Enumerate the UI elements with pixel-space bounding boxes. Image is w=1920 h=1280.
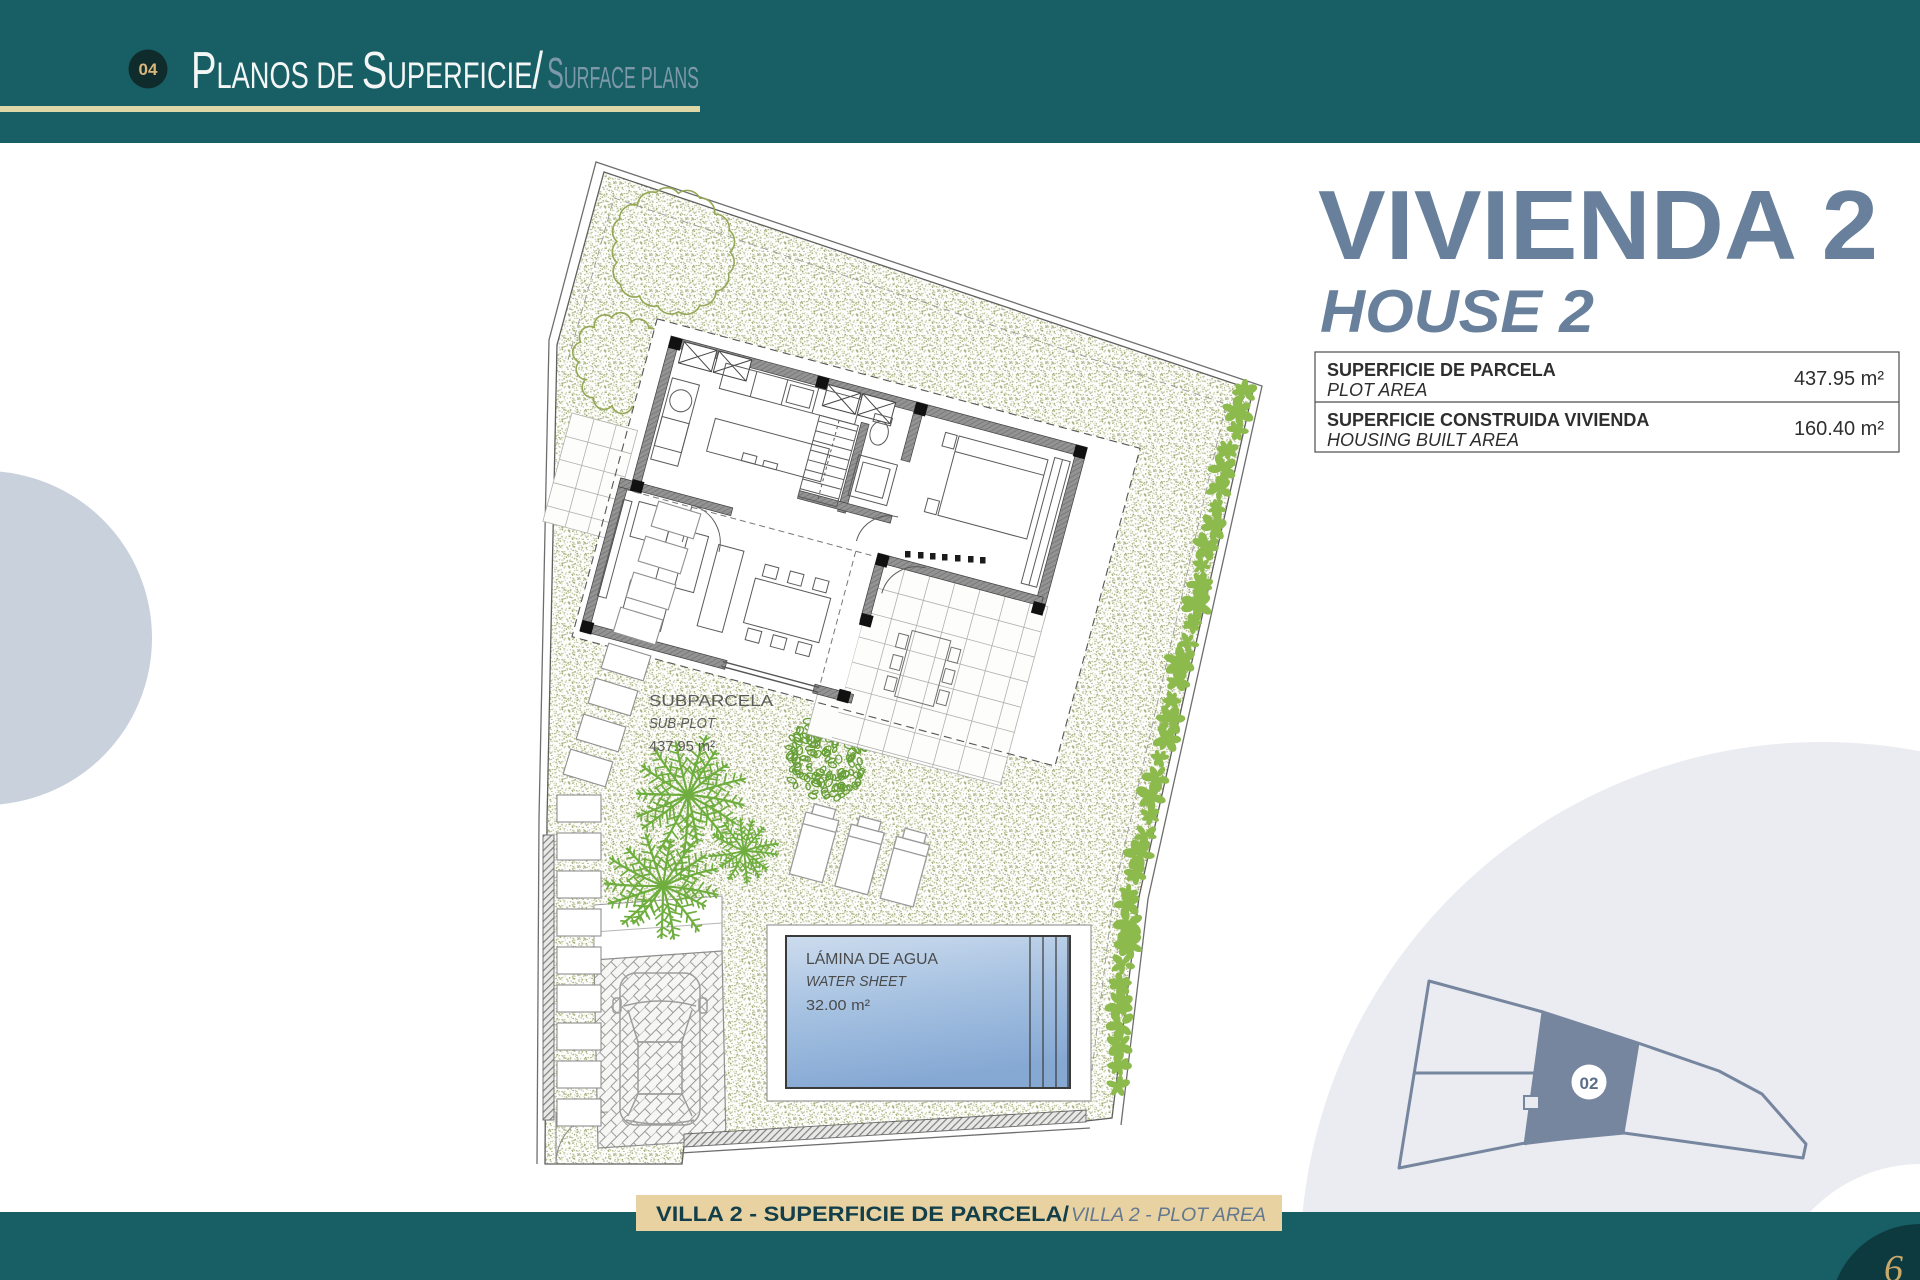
svg-text:02: 02: [1580, 1074, 1599, 1093]
svg-text:SUBPARCELA: SUBPARCELA: [649, 693, 773, 710]
svg-text:VILLA 2 - SUPERFICIE DE PARCEL: VILLA 2 - SUPERFICIE DE PARCELA/: [656, 1203, 1069, 1226]
svg-text:SUPERFICIE DE PARCELA: SUPERFICIE DE PARCELA: [1327, 360, 1556, 380]
svg-text:HOUSING BUILT AREA: HOUSING BUILT AREA: [1327, 430, 1519, 450]
svg-text:HOUSE 2: HOUSE 2: [1320, 278, 1594, 345]
svg-text:437.95 m²: 437.95 m²: [649, 738, 715, 755]
svg-text:LÁMINA DE AGUA: LÁMINA DE AGUA: [806, 949, 938, 968]
svg-text:437.95 m²: 437.95 m²: [1794, 368, 1884, 390]
svg-text:6: 6: [1884, 1248, 1903, 1280]
svg-text:VIVIENDA 2: VIVIENDA 2: [1318, 170, 1878, 280]
svg-text:VILLA 2 - PLOT AREA: VILLA 2 - PLOT AREA: [1071, 1205, 1266, 1226]
svg-text:32.00 m²: 32.00 m²: [806, 997, 870, 1014]
svg-text:PLOT AREA: PLOT AREA: [1327, 380, 1427, 400]
svg-text:SUPERFICIE CONSTRUIDA VIVIENDA: SUPERFICIE CONSTRUIDA VIVIENDA: [1327, 410, 1649, 430]
svg-text:04: 04: [139, 60, 158, 79]
svg-text:160.40 m²: 160.40 m²: [1794, 418, 1884, 440]
svg-text:WATER SHEET: WATER SHEET: [806, 973, 908, 990]
svg-text:SUB-PLOT: SUB-PLOT: [649, 715, 717, 732]
